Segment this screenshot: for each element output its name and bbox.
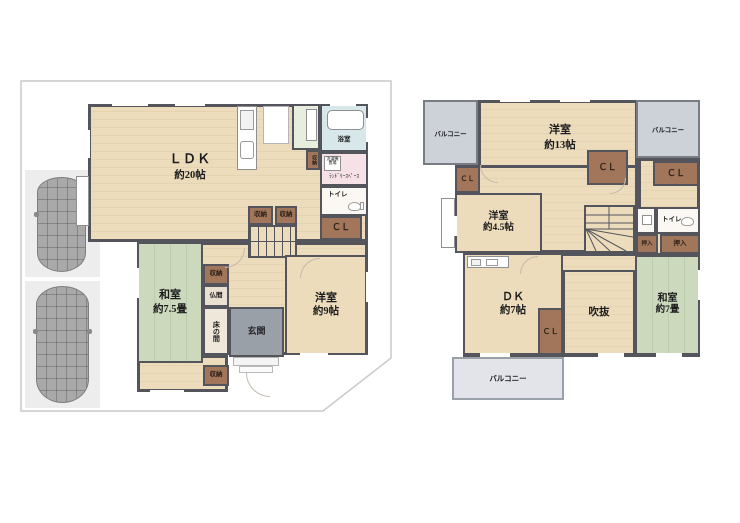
- kitchen-counter: [237, 106, 257, 170]
- window-mark: [560, 98, 590, 102]
- stairs-icon: [584, 205, 635, 253]
- car-icon: [36, 286, 89, 403]
- room-yoshitsu45-size: 約4.5帖: [483, 223, 514, 235]
- room-bathroom-label: 浴室: [338, 136, 351, 144]
- kitchen-counter: [467, 256, 509, 268]
- room-washroom: [292, 104, 320, 150]
- room-genkan: 玄関: [229, 307, 284, 357]
- butsuma-label: 仏間: [210, 292, 223, 300]
- washer-label: 洗濯機置場: [325, 157, 340, 166]
- closet-label: ＣＬ: [598, 162, 616, 173]
- room-washitsu-2f-name: 和室: [657, 293, 677, 306]
- storage-label: 収納: [310, 155, 316, 165]
- room-washitsu-1f: 和室 約7.5畳: [137, 242, 203, 363]
- room-washitsu-2f-size: 約7畳: [656, 305, 680, 317]
- window-mark: [480, 353, 510, 357]
- oshiire-label: 押入: [641, 241, 652, 248]
- window-mark: [135, 268, 139, 298]
- closet: ＣＬ: [320, 216, 362, 240]
- window-mark: [150, 390, 184, 394]
- butsuma: 仏間: [203, 285, 229, 307]
- room-dk-name: ＤＫ: [502, 291, 524, 305]
- washbasin-nook: [636, 207, 656, 234]
- window-mark: [698, 270, 702, 300]
- closet: ＣＬ: [653, 161, 699, 186]
- storage-box: 収納: [275, 206, 297, 225]
- void-area: 吹抜: [563, 270, 635, 355]
- window-mark: [330, 102, 356, 106]
- refrigerator-space: [263, 106, 289, 144]
- storage-box: 収納: [248, 206, 273, 225]
- storage-label: 収納: [280, 211, 293, 219]
- tokonoma: 床の間: [203, 307, 229, 355]
- void-label: 吹抜: [589, 306, 610, 319]
- room-yoshitsu45-name: 洋室: [488, 211, 508, 224]
- oshiire-label: 押入: [674, 240, 687, 248]
- closet: ＣＬ: [538, 308, 563, 355]
- room-yoshitsu-1f-name: 洋室: [315, 292, 337, 306]
- window-mark: [300, 353, 328, 357]
- storage-box: 収納: [306, 150, 320, 170]
- storage-box: 収納: [203, 365, 229, 386]
- window-mark: [453, 216, 457, 236]
- room-washitsu-2f: 和室 約7畳: [635, 255, 700, 355]
- room-laundry-label: ﾗﾝﾄﾞﾘｰｽﾍﾟｰｽ: [329, 174, 359, 181]
- closet-label: ＣＬ: [461, 175, 475, 184]
- room-toilet-2f: トイレ: [656, 207, 700, 234]
- storage-label: 収納: [210, 270, 223, 278]
- bay-window: [76, 176, 89, 226]
- room-genkan-label: 玄関: [247, 326, 265, 337]
- closet-label: ＣＬ: [543, 327, 559, 337]
- oshiire: 押入: [636, 234, 658, 254]
- closet: ＣＬ: [455, 166, 480, 193]
- tokonoma-label: 床の間: [212, 321, 221, 342]
- window-mark: [366, 272, 370, 302]
- room-bathroom: 浴室: [320, 104, 368, 152]
- entrance-step: [239, 366, 273, 373]
- oshiire: 押入: [660, 234, 700, 254]
- room-toilet-1f-label: トイレ: [328, 191, 348, 199]
- room-yoshitsu-1f-size: 約9帖: [313, 305, 339, 318]
- floorplan-canvas: ＬＤＫ 約20帖 浴室 収納 洗濯機置場 ﾗﾝﾄﾞﾘｰｽﾍﾟｰｽ トイレ ＣＬ: [0, 0, 740, 523]
- window-mark: [112, 102, 148, 106]
- window-mark: [366, 118, 370, 142]
- closet-label: ＣＬ: [332, 222, 350, 233]
- room-washitsu-1f-name: 和室: [159, 289, 181, 303]
- stairs-icon: [248, 225, 297, 258]
- room-yoshitsu45: 洋室 約4.5帖: [455, 193, 542, 253]
- room-washitsu-1f-size: 約7.5畳: [153, 303, 187, 316]
- room-dk-size: 約7帖: [500, 304, 526, 317]
- room-laundry: 洗濯機置場 ﾗﾝﾄﾞﾘｰｽﾍﾟｰｽ: [320, 152, 368, 186]
- window-mark: [175, 102, 205, 106]
- entrance-step: [233, 357, 279, 366]
- room-toilet-2f-label: トイレ: [662, 216, 682, 224]
- room-toilet-1f: トイレ: [320, 186, 368, 216]
- closet-label: ＣＬ: [667, 168, 685, 179]
- window-mark: [500, 98, 530, 102]
- room-yoshitsu-1f: 洋室 約9帖: [285, 255, 367, 355]
- storage-label: 収納: [210, 371, 223, 379]
- window-mark: [656, 353, 682, 357]
- storage-label: 収納: [254, 211, 267, 219]
- window-mark: [86, 130, 90, 158]
- window-mark: [598, 353, 624, 357]
